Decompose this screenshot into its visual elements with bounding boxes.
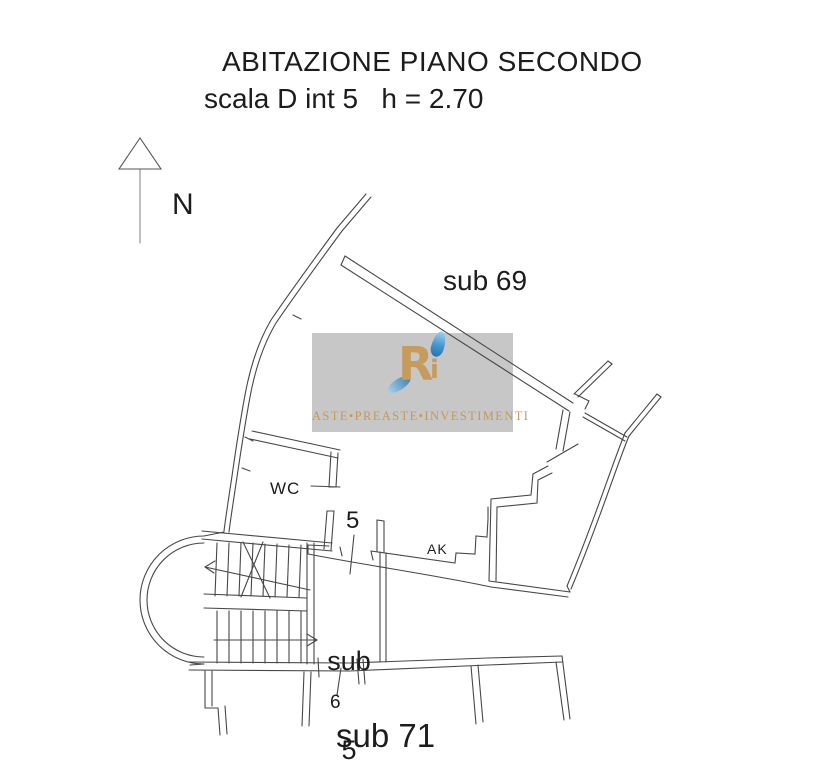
label-sub-5-word: sub	[317, 645, 381, 677]
floor-plan-page: R i ASTE•PREASTE•INVESTIMENTI	[0, 0, 836, 765]
label-sub-71: sub 71	[336, 719, 435, 754]
label-door-6: 6	[330, 693, 341, 713]
page-title: ABITAZIONE PIANO SECONDO	[222, 47, 643, 76]
floor-plan-drawing	[0, 0, 836, 765]
label-sub-69: sub 69	[443, 266, 527, 295]
label-wc: WC	[270, 480, 300, 498]
label-door-5: 5	[346, 508, 359, 533]
north-arrow-icon	[119, 138, 161, 243]
scale-height-note: scala D int 5 h = 2.70	[204, 84, 483, 113]
label-ak: AK	[427, 542, 448, 557]
north-label: N	[172, 189, 194, 221]
